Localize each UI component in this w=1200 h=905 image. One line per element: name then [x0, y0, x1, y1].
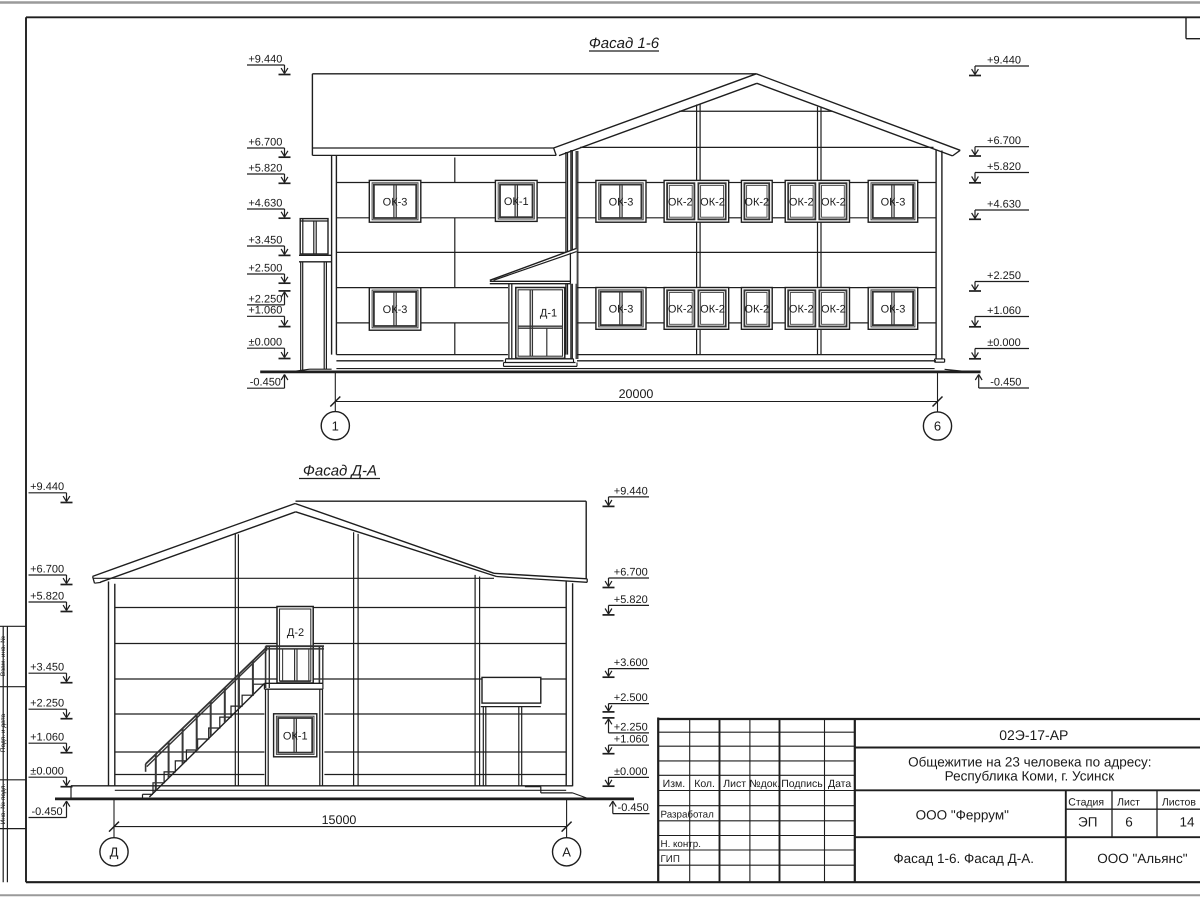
- svg-text:+2.250: +2.250: [614, 721, 648, 733]
- svg-text:ОК-2: ОК-2: [700, 303, 725, 315]
- svg-text:ОК-3: ОК-3: [383, 304, 408, 316]
- svg-text:Фасад 1-6: Фасад 1-6: [589, 35, 660, 52]
- svg-text:Инв. № подл.: Инв. № подл.: [0, 784, 7, 825]
- svg-text:ОК-2: ОК-2: [744, 303, 769, 315]
- svg-text:15000: 15000: [322, 813, 357, 827]
- svg-text:ОК-2: ОК-2: [744, 196, 769, 208]
- svg-text:Кол.: Кол.: [694, 778, 715, 790]
- svg-text:20000: 20000: [619, 387, 654, 401]
- svg-text:Д: Д: [110, 845, 119, 860]
- svg-text:ОК-2: ОК-2: [668, 303, 693, 315]
- svg-text:ООО "Альянс": ООО "Альянс": [1097, 851, 1187, 866]
- svg-text:Подп. и дата: Подп. и дата: [0, 713, 7, 752]
- svg-text:Стадия: Стадия: [1068, 797, 1104, 809]
- svg-text:+2.250: +2.250: [987, 270, 1021, 282]
- svg-text:Разработал: Разработал: [661, 810, 715, 821]
- svg-text:ОК-3: ОК-3: [383, 196, 408, 208]
- svg-text:-0.450: -0.450: [31, 806, 62, 818]
- svg-text:-0.450: -0.450: [990, 376, 1021, 388]
- svg-text:+6.700: +6.700: [614, 566, 648, 578]
- svg-text:-0.450: -0.450: [618, 802, 649, 814]
- svg-text:+4.630: +4.630: [987, 198, 1021, 210]
- svg-text:ОК-3: ОК-3: [609, 303, 634, 315]
- svg-text:Республика Коми, г. Усинск: Республика Коми, г. Усинск: [945, 769, 1115, 784]
- svg-text:ООО "Феррум": ООО "Феррум": [916, 808, 1010, 823]
- svg-text:Д-2: Д-2: [287, 627, 304, 639]
- svg-text:Общежитие на 23 человека по ад: Общежитие на 23 человека по адресу:: [908, 755, 1151, 770]
- svg-text:ОК-3: ОК-3: [881, 303, 906, 315]
- svg-text:Фасад 1-6. Фасад Д-А.: Фасад 1-6. Фасад Д-А.: [893, 851, 1034, 866]
- svg-text:ОК-2: ОК-2: [668, 196, 693, 208]
- svg-text:14: 14: [1179, 815, 1195, 830]
- svg-text:+9.440: +9.440: [30, 481, 64, 493]
- svg-text:+1.060: +1.060: [30, 732, 64, 744]
- svg-text:02Э-17-АР: 02Э-17-АР: [999, 727, 1068, 743]
- svg-text:Подпись: Подпись: [781, 778, 823, 790]
- svg-text:1: 1: [332, 418, 339, 433]
- svg-text:Изм.: Изм.: [663, 778, 686, 790]
- svg-text:Лист: Лист: [1117, 797, 1140, 809]
- svg-text:ОК-2: ОК-2: [789, 196, 814, 208]
- svg-text:+4.630: +4.630: [248, 197, 282, 209]
- svg-text:Дата: Дата: [828, 778, 851, 790]
- svg-text:±0.000: ±0.000: [249, 337, 283, 349]
- svg-text:+3.450: +3.450: [30, 662, 64, 674]
- svg-text:№док.: №док.: [749, 778, 780, 790]
- svg-text:+1.060: +1.060: [987, 305, 1021, 317]
- svg-text:А: А: [562, 845, 571, 860]
- svg-text:ОК-3: ОК-3: [881, 196, 906, 208]
- svg-text:+9.440: +9.440: [248, 53, 282, 65]
- svg-text:ОК-2: ОК-2: [789, 303, 814, 315]
- svg-text:6: 6: [934, 419, 941, 434]
- svg-text:ОК-3: ОК-3: [609, 196, 634, 208]
- svg-text:ОК-2: ОК-2: [821, 303, 846, 315]
- svg-text:±0.000: ±0.000: [987, 337, 1021, 349]
- svg-text:Листов: Листов: [1162, 797, 1197, 809]
- svg-text:Взам. инв. №: Взам. инв. №: [0, 636, 7, 676]
- svg-text:+3.600: +3.600: [614, 657, 648, 669]
- svg-text:Фасад Д-А: Фасад Д-А: [303, 463, 377, 480]
- svg-text:+3.450: +3.450: [248, 234, 282, 246]
- svg-text:ОК-1: ОК-1: [283, 730, 308, 742]
- svg-text:+2.500: +2.500: [614, 692, 648, 704]
- svg-text:Д-1: Д-1: [540, 307, 557, 319]
- svg-text:+5.820: +5.820: [30, 590, 64, 602]
- svg-text:±0.000: ±0.000: [30, 766, 64, 778]
- svg-text:ОК-1: ОК-1: [504, 196, 529, 208]
- svg-text:+1.060: +1.060: [614, 734, 648, 746]
- svg-text:+5.820: +5.820: [614, 594, 648, 606]
- svg-text:+2.500: +2.500: [248, 262, 282, 274]
- svg-text:+9.440: +9.440: [987, 54, 1021, 66]
- svg-text:+9.440: +9.440: [614, 485, 648, 497]
- svg-text:+2.250: +2.250: [248, 293, 282, 305]
- svg-text:+5.820: +5.820: [248, 162, 282, 174]
- svg-text:+1.060: +1.060: [248, 305, 282, 317]
- svg-text:+6.700: +6.700: [248, 136, 282, 148]
- svg-text:-0.450: -0.450: [250, 377, 281, 389]
- svg-text:ОК-2: ОК-2: [700, 196, 725, 208]
- svg-text:ЭП: ЭП: [1078, 815, 1097, 830]
- svg-text:Н. контр.: Н. контр.: [661, 839, 701, 850]
- svg-text:+5.820: +5.820: [987, 161, 1021, 173]
- svg-text:6: 6: [1125, 815, 1133, 830]
- svg-text:+6.700: +6.700: [987, 135, 1021, 147]
- svg-text:ГИП: ГИП: [661, 854, 680, 865]
- svg-text:Лист: Лист: [723, 778, 746, 790]
- svg-text:+2.250: +2.250: [30, 698, 64, 710]
- svg-text:±0.000: ±0.000: [614, 766, 648, 778]
- svg-text:+6.700: +6.700: [30, 563, 64, 575]
- svg-text:ОК-2: ОК-2: [821, 196, 846, 208]
